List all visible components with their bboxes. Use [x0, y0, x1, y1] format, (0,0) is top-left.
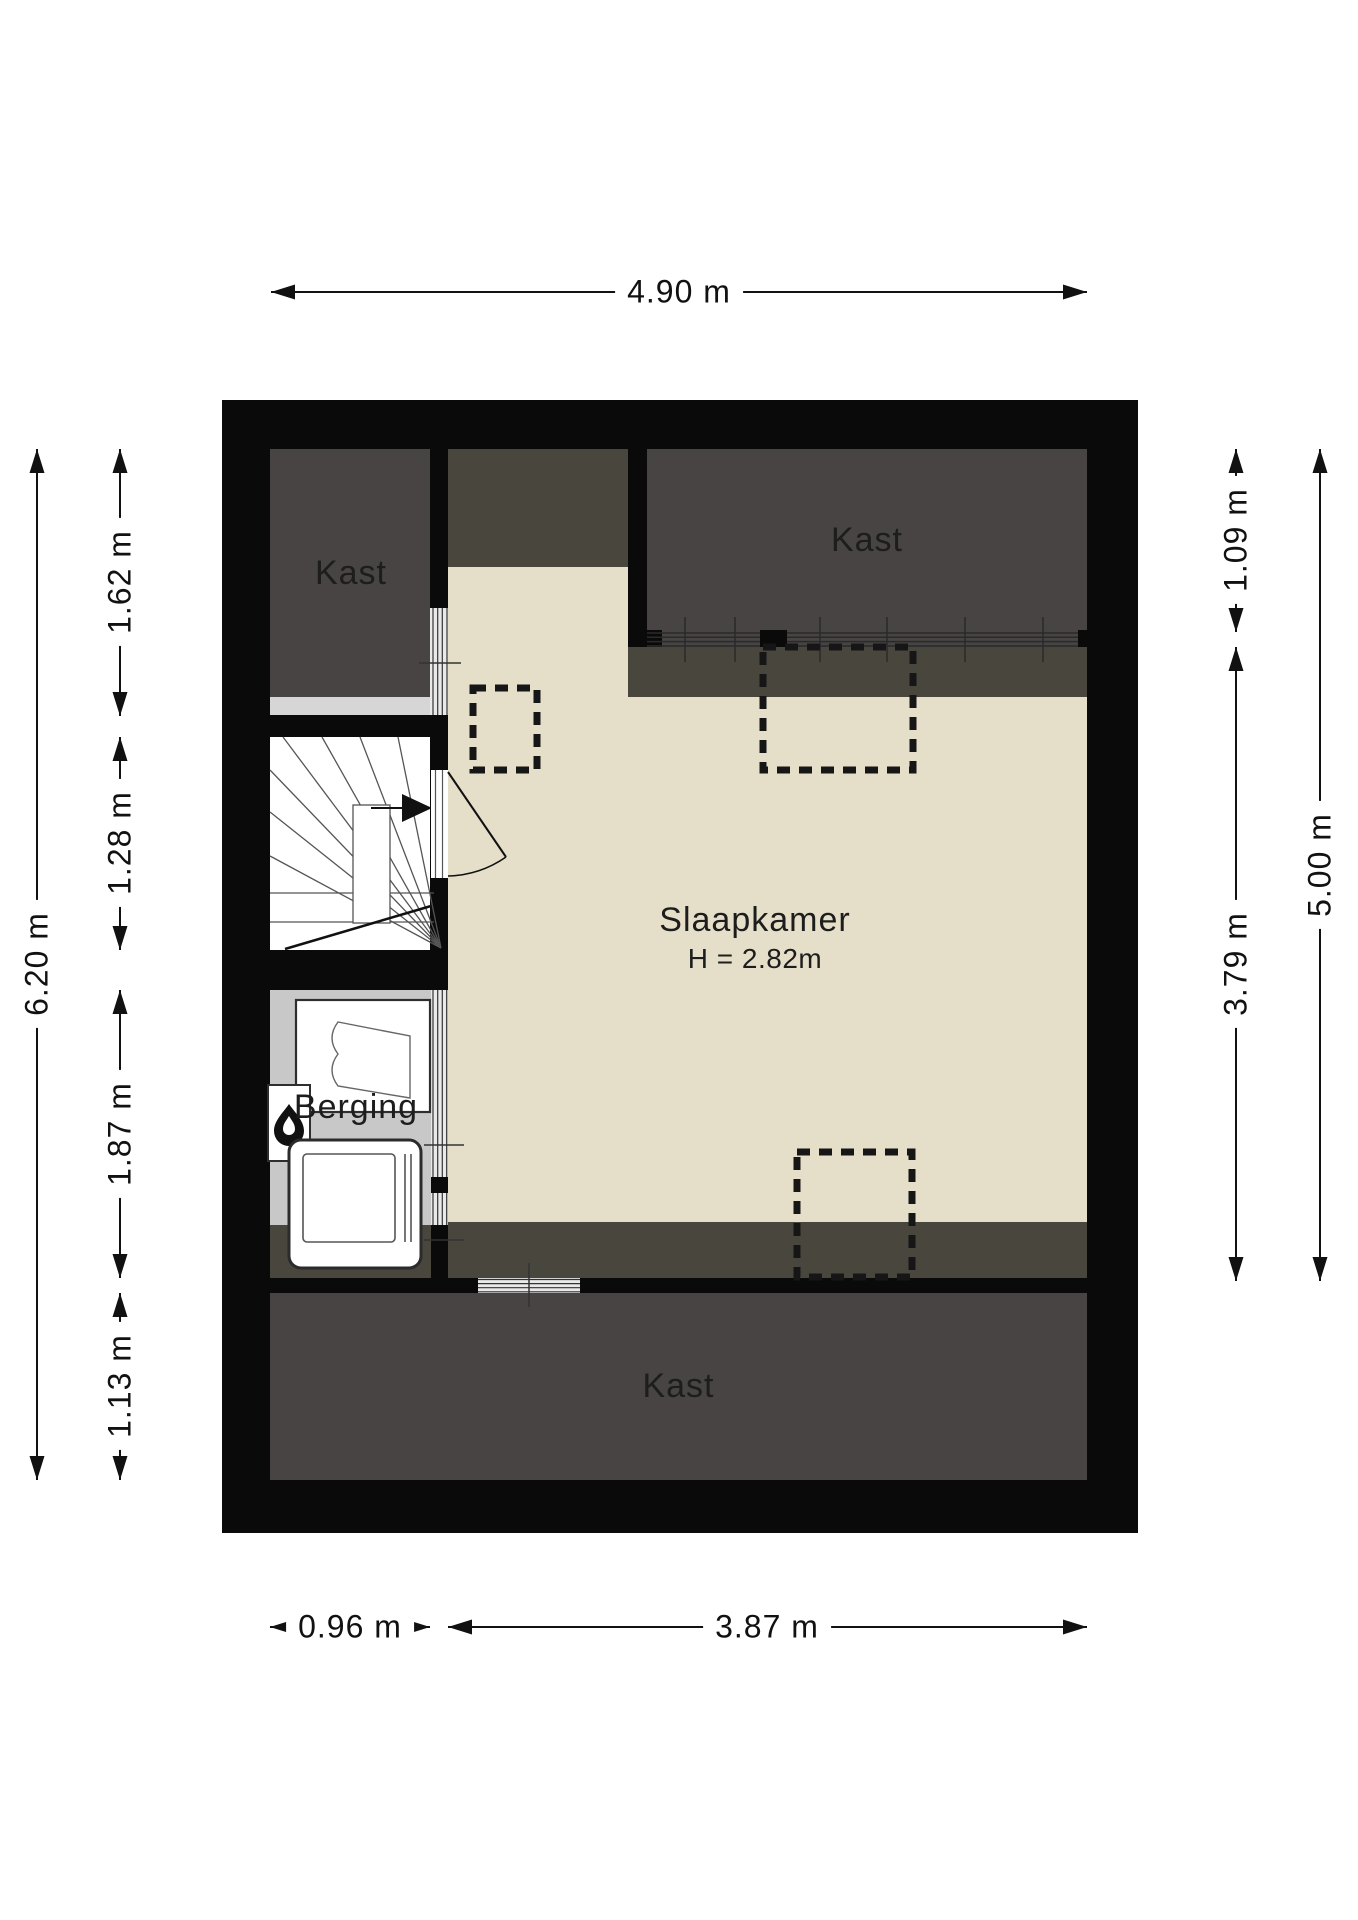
dimension-bottom-segment-2: 3.87 m — [703, 1608, 831, 1647]
dimension-right-segment-1: 1.09 m — [1217, 476, 1256, 604]
floorplan-canvas: Kast Kast Slaapkamer H = 2.82m Berging K… — [0, 0, 1358, 1920]
window-bottom-wall — [478, 1263, 580, 1307]
dimension-left-segment-1: 1.62 m — [101, 518, 140, 646]
railing-under-right-kast — [647, 617, 1087, 662]
window-kast-top-left — [419, 608, 461, 715]
skylights — [473, 647, 913, 1277]
dimension-left-segment-2: 1.28 m — [101, 779, 140, 907]
dimension-right-total: 5.00 m — [1301, 801, 1340, 929]
skylight-icon — [763, 647, 913, 770]
stairs-newel-box — [353, 805, 390, 923]
dimension-left-segment-4: 1.13 m — [101, 1322, 140, 1450]
dimension-lines — [30, 285, 1328, 1635]
dimension-left-segment-3: 1.87 m — [101, 1070, 140, 1198]
skylight-icon — [797, 1152, 912, 1277]
dimension-right-segment-2: 3.79 m — [1217, 900, 1256, 1028]
dimension-bottom-segment-1: 0.96 m — [286, 1608, 414, 1647]
washing-machine — [289, 1140, 421, 1268]
boiler-unit — [296, 1000, 430, 1112]
door — [431, 770, 506, 878]
dimension-top-width: 4.90 m — [615, 273, 743, 312]
skylight-icon — [473, 688, 537, 770]
dimension-left-total: 6.20 m — [18, 900, 57, 1028]
